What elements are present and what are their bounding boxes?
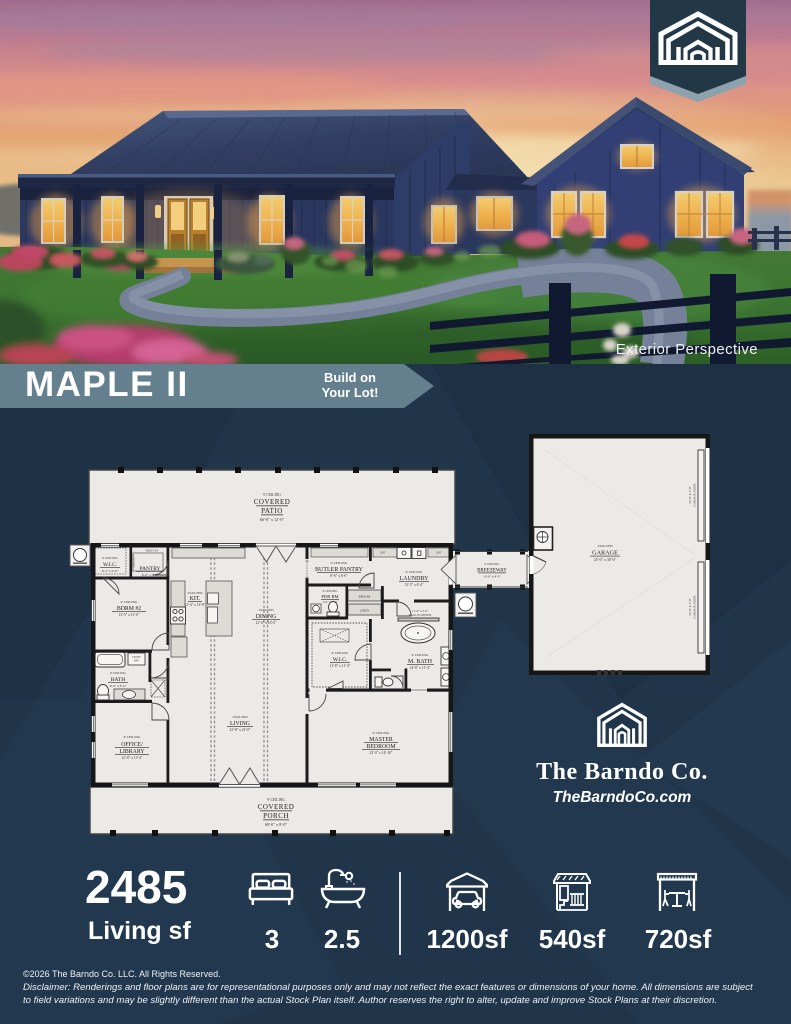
svg-text:12'-0" x 13'-4": 12'-0" x 13'-4" xyxy=(122,756,144,760)
svg-text:9' CEILING: 9' CEILING xyxy=(373,731,390,735)
svg-text:9' CEILING: 9' CEILING xyxy=(267,798,285,802)
svg-text:GARAGE: GARAGE xyxy=(592,550,618,557)
svg-text:13'-0" x 8'-0": 13'-0" x 8'-0" xyxy=(483,575,501,579)
svg-text:13'-5" x 11'-0": 13'-5" x 11'-0" xyxy=(119,613,140,617)
svg-text:16'-0" X 7'-0": 16'-0" X 7'-0" xyxy=(688,597,692,615)
svg-text:VAULTED: VAULTED xyxy=(258,608,274,612)
svg-text:PDR RM: PDR RM xyxy=(321,594,338,599)
svg-text:9' CEILING: 9' CEILING xyxy=(406,570,423,574)
svg-text:OPT: OPT xyxy=(436,552,442,555)
svg-text:M. BATH: M. BATH xyxy=(408,659,433,665)
svg-text:BDRM #2: BDRM #2 xyxy=(117,606,141,612)
svg-text:66'-0" x 12'-0": 66'-0" x 12'-0" xyxy=(260,517,285,522)
svg-text:MASTER: MASTER xyxy=(369,737,393,743)
svg-text:COVERED: COVERED xyxy=(254,498,291,506)
svg-text:OPT: OPT xyxy=(380,552,386,555)
svg-text:WALK-IN SHOWER: WALK-IN SHOWER xyxy=(409,614,432,617)
svg-text:BROOM: BROOM xyxy=(359,595,371,599)
svg-text:GARAGE DOOR: GARAGE DOOR xyxy=(693,483,697,507)
svg-text:9' CEILING: 9' CEILING xyxy=(102,556,118,560)
svg-text:LIVING: LIVING xyxy=(230,721,250,727)
svg-text:16'-0" X 7'-0": 16'-0" X 7'-0" xyxy=(688,485,692,503)
svg-text:9' CEILING: 9' CEILING xyxy=(412,653,429,657)
svg-text:9' CEILING: 9' CEILING xyxy=(121,600,138,604)
svg-text:14'-8" x 11'-4": 14'-8" x 11'-4" xyxy=(410,666,431,670)
svg-text:BEDROOM: BEDROOM xyxy=(367,744,396,750)
svg-text:23'-0" x 14'-10": 23'-0" x 14'-10" xyxy=(370,751,393,755)
svg-text:VAULTED: VAULTED xyxy=(597,544,613,548)
svg-text:LIBRARY: LIBRARY xyxy=(119,749,145,755)
svg-text:22'-8" x 21'-0": 22'-8" x 21'-0" xyxy=(230,728,252,732)
svg-text:8'-2" x 5'-6": 8'-2" x 5'-6" xyxy=(102,569,119,573)
svg-text:9' CEILING: 9' CEILING xyxy=(124,735,141,739)
svg-text:9' CEILING: 9' CEILING xyxy=(485,562,501,566)
svg-text:GARAGE DOOR: GARAGE DOOR xyxy=(693,595,697,619)
svg-text:LAUNDRY: LAUNDRY xyxy=(399,576,429,582)
svg-text:BUTLER PANTRY: BUTLER PANTRY xyxy=(315,567,364,573)
svg-text:9' CEILING: 9' CEILING xyxy=(332,651,349,655)
svg-text:VAULTED: VAULTED xyxy=(232,715,248,719)
svg-text:9' CEILING: 9' CEILING xyxy=(110,671,126,675)
svg-text:OFFICE/: OFFICE/ xyxy=(121,742,143,748)
svg-text:9' CEILING: 9' CEILING xyxy=(263,493,281,497)
svg-text:PATIO: PATIO xyxy=(261,507,283,515)
svg-text:PORCH: PORCH xyxy=(263,812,289,820)
svg-text:9'-0" x 8'-0": 9'-0" x 8'-0" xyxy=(110,684,127,688)
svg-text:LINEN: LINEN xyxy=(360,609,370,613)
svg-text:12'-6" x 16'-0": 12'-6" x 16'-0" xyxy=(256,621,278,625)
svg-text:VAULTED: VAULTED xyxy=(187,591,203,595)
svg-text:DRY: DRY xyxy=(134,660,140,663)
svg-text:13'-5" x 6'-4": 13'-5" x 6'-4" xyxy=(404,583,424,587)
svg-text:12'-4" x 14'-8": 12'-4" x 14'-8" xyxy=(185,603,207,607)
svg-text:DINING: DINING xyxy=(256,614,277,620)
svg-text:9' CEILING: 9' CEILING xyxy=(323,589,339,593)
svg-text:SHELVES: SHELVES xyxy=(146,549,159,553)
svg-text:KIT.: KIT. xyxy=(190,596,201,602)
svg-text:11'-8" x 11'-4": 11'-8" x 11'-4" xyxy=(330,664,351,668)
svg-text:11'-4" x 2'-0": 11'-4" x 2'-0" xyxy=(412,609,429,613)
svg-text:9' CEILING: 9' CEILING xyxy=(331,561,348,565)
svg-text:60'-0" x 8'-0": 60'-0" x 8'-0" xyxy=(265,822,288,827)
svg-text:25'-0" x 30'-0": 25'-0" x 30'-0" xyxy=(594,558,617,562)
svg-text:8'-6" x 6'-0": 8'-6" x 6'-0" xyxy=(330,574,348,578)
svg-text:COVERED: COVERED xyxy=(258,803,295,811)
